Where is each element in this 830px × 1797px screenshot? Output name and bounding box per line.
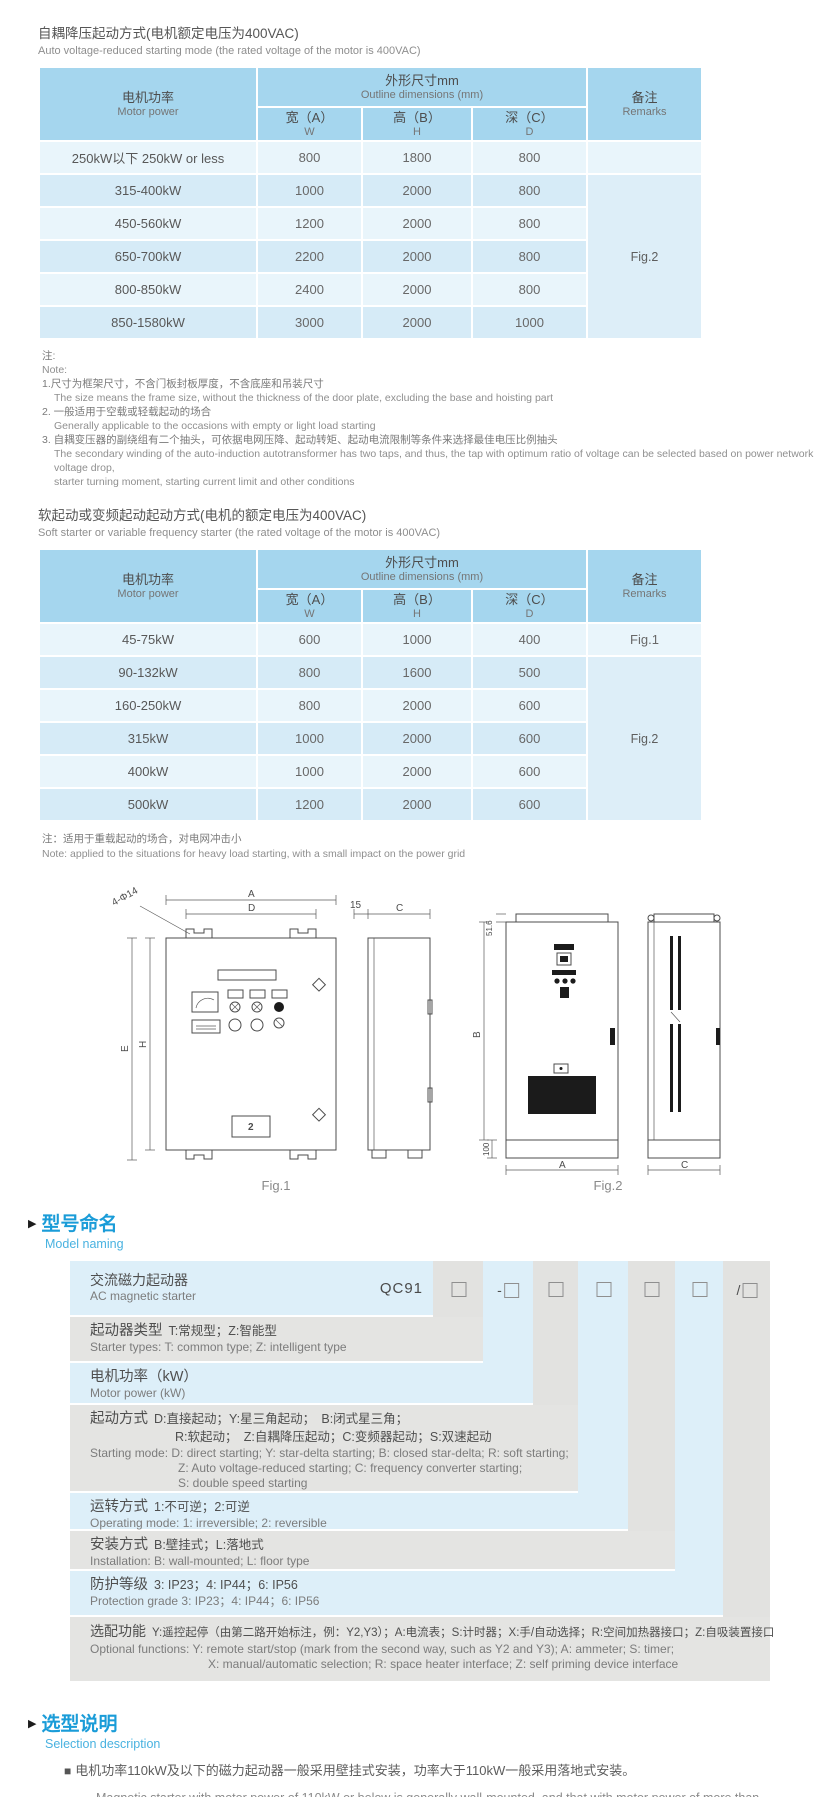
note-line: The secondary winding of the auto-induct… bbox=[42, 447, 830, 475]
fig1-drawing: A D 4-Φ14 E H bbox=[106, 880, 446, 1176]
svg-text:4-Φ14: 4-Φ14 bbox=[110, 885, 140, 908]
section1-notes: 注: Note: 1.尺寸为框架尺寸，不含门板封板厚度，不含底座和吊装尺寸 Th… bbox=[42, 349, 830, 489]
width-cell: 800 bbox=[257, 141, 362, 174]
depth-header: 深（C）D bbox=[472, 107, 587, 141]
outline-dimensions-header: 外形尺寸mm Outline dimensions (mm) bbox=[257, 549, 587, 589]
depth-cell: 600 bbox=[472, 788, 587, 821]
table-header-row: 电机功率 Motor power 外形尺寸mm Outline dimensio… bbox=[39, 67, 702, 107]
product-name-en: AC magnetic starter bbox=[90, 1289, 196, 1304]
svg-text:C: C bbox=[681, 1160, 688, 1171]
selection-paragraph-en: Magnetic starter with motor power of 110… bbox=[38, 1787, 790, 1797]
width-cell: 1200 bbox=[257, 207, 362, 240]
motor-power-en: Motor power bbox=[40, 106, 256, 119]
fig2-block: 51.6 B 100 bbox=[458, 880, 758, 1193]
code-slot bbox=[643, 1282, 660, 1297]
note-line: 1.尺寸为框架尺寸，不含门板封板厚度，不含底座和吊装尺寸 bbox=[42, 377, 830, 391]
section-arrow-icon: ▶ bbox=[28, 1218, 36, 1230]
width-cell: 2200 bbox=[257, 240, 362, 273]
power-cell: 500kW bbox=[39, 788, 257, 821]
model-row-motor-power: 电机功率（kW） Motor power (kW) bbox=[70, 1363, 770, 1405]
depth-cell: 600 bbox=[472, 722, 587, 755]
svg-text:2: 2 bbox=[248, 1122, 254, 1133]
fig2-drawing: 51.6 B 100 bbox=[458, 880, 758, 1176]
power-cell: 800-850kW bbox=[39, 273, 257, 306]
code-box bbox=[693, 1282, 708, 1297]
section1-title-zh: 自耦降压起动方式(电机额定电压为400VAC) bbox=[38, 22, 830, 42]
depth-cell: 800 bbox=[472, 273, 587, 306]
power-cell: 315kW bbox=[39, 722, 257, 755]
model-row-installation: 安装方式B:壁挂式；L:落地式 Installation: B: wall-mo… bbox=[70, 1531, 770, 1571]
height-cell: 1800 bbox=[362, 141, 472, 174]
remark-cell: Fig.1 bbox=[587, 623, 702, 656]
catalog-page: 自耦降压起动方式(电机额定电压为400VAC) Auto voltage-red… bbox=[0, 0, 830, 1797]
height-header: 高（B）H bbox=[362, 589, 472, 623]
width-cell: 1000 bbox=[257, 755, 362, 788]
selection-paragraph-zh: ■电机功率110kW及以下的磁力起动器一般采用壁挂式安装，功率大于110kW一般… bbox=[64, 1761, 830, 1781]
section2-title-en: Soft starter or variable frequency start… bbox=[38, 527, 830, 539]
selection-heading: ▶选型说明 Selection description bbox=[28, 1709, 830, 1751]
power-cell: 850-1580kW bbox=[39, 306, 257, 339]
depth-cell: 800 bbox=[472, 174, 587, 207]
table-row: 315-400kW 1000 2000 800 Fig.2 bbox=[39, 174, 702, 207]
selection-body: ■电机功率110kW及以下的磁力起动器一般采用壁挂式安装，功率大于110kW一般… bbox=[0, 1761, 830, 1797]
power-cell: 160-250kW bbox=[39, 689, 257, 722]
figures: A D 4-Φ14 E H bbox=[106, 880, 830, 1193]
svg-text:B: B bbox=[472, 1031, 483, 1038]
table-row: 45-75kW 600 1000 400 Fig.1 bbox=[39, 623, 702, 656]
remarks-header: 备注 Remarks bbox=[587, 67, 702, 141]
fig1-label: Fig.1 bbox=[106, 1178, 446, 1193]
svg-text:D: D bbox=[248, 903, 255, 914]
code-slot bbox=[547, 1282, 564, 1297]
code-box bbox=[549, 1282, 564, 1297]
code-slot: - bbox=[497, 1282, 519, 1298]
power-cell: 45-75kW bbox=[39, 623, 257, 656]
depth-cell: 500 bbox=[472, 656, 587, 689]
selection-title-zh: 选型说明 bbox=[41, 1714, 117, 1735]
table-row: 250kW以下 250kW or less 800 1800 800 bbox=[39, 141, 702, 174]
power-cell: 315-400kW bbox=[39, 174, 257, 207]
height-cell: 2000 bbox=[362, 207, 472, 240]
bullet-icon: ■ bbox=[64, 1764, 71, 1778]
svg-text:A: A bbox=[248, 889, 255, 900]
remark-cell bbox=[587, 141, 702, 174]
power-cell: 400kW bbox=[39, 755, 257, 788]
model-naming-heading: ▶型号命名 Model naming bbox=[28, 1209, 830, 1251]
code-box bbox=[597, 1282, 612, 1297]
code-box bbox=[645, 1282, 660, 1297]
height-header: 高（B）H bbox=[362, 107, 472, 141]
width-cell: 600 bbox=[257, 623, 362, 656]
remarks-header: 备注 Remarks bbox=[587, 549, 702, 623]
depth-cell: 600 bbox=[472, 755, 587, 788]
fig2-label: Fig.2 bbox=[458, 1178, 758, 1193]
auto-voltage-table: 电机功率 Motor power 外形尺寸mm Outline dimensio… bbox=[38, 66, 703, 340]
height-cell: 2000 bbox=[362, 689, 472, 722]
width-cell: 1000 bbox=[257, 722, 362, 755]
note-line: 注: bbox=[42, 349, 830, 363]
height-cell: 1600 bbox=[362, 656, 472, 689]
width-cell: 800 bbox=[257, 656, 362, 689]
motor-power-zh: 电机功率 bbox=[40, 90, 256, 106]
model-naming-title-zh: 型号命名 bbox=[41, 1214, 117, 1235]
svg-text:15: 15 bbox=[350, 900, 362, 911]
note-line: Note: applied to the situations for heav… bbox=[42, 847, 830, 862]
power-cell: 650-700kW bbox=[39, 240, 257, 273]
code-slot: / bbox=[737, 1282, 758, 1298]
table-header-row: 电机功率 Motor power 外形尺寸mm Outline dimensio… bbox=[39, 549, 702, 589]
height-cell: 2000 bbox=[362, 273, 472, 306]
model-row-optional-functions: 选配功能Y:遥控起停（由第二路开始标注，例：Y2,Y3）；A:电流表；S:计时器… bbox=[70, 1617, 770, 1683]
height-cell: 2000 bbox=[362, 174, 472, 207]
depth-cell: 600 bbox=[472, 689, 587, 722]
model-row-starter-type: 起动器类型T:常规型；Z:智能型 Starter types: T: commo… bbox=[70, 1317, 770, 1363]
remark-merged-cell: Fig.2 bbox=[587, 174, 702, 339]
power-cell: 250kW以下 250kW or less bbox=[39, 141, 257, 174]
height-cell: 2000 bbox=[362, 788, 472, 821]
code-slot bbox=[691, 1282, 708, 1297]
note-line: 2. 一般适用于空载或轻载起动的场合 bbox=[42, 405, 830, 419]
svg-text:100: 100 bbox=[482, 1142, 491, 1156]
width-cell: 1000 bbox=[257, 174, 362, 207]
height-cell: 2000 bbox=[362, 306, 472, 339]
width-cell: 3000 bbox=[257, 306, 362, 339]
depth-cell: 800 bbox=[472, 141, 587, 174]
width-header: 宽（A）W bbox=[257, 107, 362, 141]
note-line: Note: bbox=[42, 363, 830, 377]
width-header: 宽（A）W bbox=[257, 589, 362, 623]
note-line: 注：适用于重载起动的场合，对电网冲击小 bbox=[42, 832, 830, 847]
table-row: 90-132kW 800 1600 500 Fig.2 bbox=[39, 656, 702, 689]
code-box bbox=[452, 1282, 467, 1297]
width-cell: 800 bbox=[257, 689, 362, 722]
model-row-product: 交流磁力起动器 AC magnetic starter QC91 - / bbox=[70, 1261, 770, 1317]
remark-merged-cell: Fig.2 bbox=[587, 656, 702, 821]
svg-text:E: E bbox=[120, 1045, 131, 1052]
model-prefix: QC91 bbox=[380, 1280, 423, 1297]
model-row-protection-grade: 防护等级3: IP23；4: IP44；6: IP56 Protection g… bbox=[70, 1571, 770, 1617]
power-cell: 90-132kW bbox=[39, 656, 257, 689]
height-cell: 1000 bbox=[362, 623, 472, 656]
note-line: 3. 自耦变压器的副绕组有二个抽头，可依据电网压降、起动转矩、起动电流限制等条件… bbox=[42, 433, 830, 447]
height-cell: 2000 bbox=[362, 722, 472, 755]
model-naming-title-en: Model naming bbox=[45, 1237, 830, 1251]
fig1-block: A D 4-Φ14 E H bbox=[106, 880, 446, 1193]
svg-text:A: A bbox=[559, 1160, 566, 1171]
code-slot bbox=[450, 1282, 467, 1297]
svg-text:C: C bbox=[396, 903, 403, 914]
product-name-zh: 交流磁力起动器 bbox=[90, 1272, 196, 1289]
section2-note: 注：适用于重载起动的场合，对电网冲击小 Note: applied to the… bbox=[42, 832, 830, 862]
depth-cell: 800 bbox=[472, 207, 587, 240]
height-cell: 2000 bbox=[362, 240, 472, 273]
note-line: The size means the frame size, without t… bbox=[42, 391, 830, 405]
model-naming-table: 交流磁力起动器 AC magnetic starter QC91 - / 起动器… bbox=[70, 1261, 770, 1683]
depth-cell: 1000 bbox=[472, 306, 587, 339]
code-box bbox=[742, 1283, 757, 1298]
depth-header: 深（C）D bbox=[472, 589, 587, 623]
code-box bbox=[504, 1283, 519, 1298]
note-line: starter turning moment, starting current… bbox=[42, 475, 830, 489]
motor-power-header: 电机功率 Motor power bbox=[39, 549, 257, 623]
svg-text:H: H bbox=[138, 1041, 149, 1048]
section-arrow-icon: ▶ bbox=[28, 1718, 36, 1730]
width-cell: 1200 bbox=[257, 788, 362, 821]
depth-cell: 800 bbox=[472, 240, 587, 273]
note-line: Generally applicable to the occasions wi… bbox=[42, 419, 830, 433]
width-cell: 2400 bbox=[257, 273, 362, 306]
height-cell: 2000 bbox=[362, 755, 472, 788]
power-cell: 450-560kW bbox=[39, 207, 257, 240]
section2-title-zh: 软起动或变频起动起动方式(电机的额定电压为400VAC) bbox=[38, 504, 830, 524]
motor-power-header: 电机功率 Motor power bbox=[39, 67, 257, 141]
depth-cell: 400 bbox=[472, 623, 587, 656]
model-row-starting-mode: 起动方式D:直接起动；Y:星三角起动； B:闭式星三角； R:软起动； Z:自耦… bbox=[70, 1405, 770, 1493]
section1-title-en: Auto voltage-reduced starting mode (the … bbox=[38, 45, 830, 57]
soft-starter-table: 电机功率 Motor power 外形尺寸mm Outline dimensio… bbox=[38, 548, 703, 822]
outline-dimensions-header: 外形尺寸mm Outline dimensions (mm) bbox=[257, 67, 587, 107]
code-slot bbox=[595, 1282, 612, 1297]
selection-title-en: Selection description bbox=[45, 1737, 830, 1751]
model-row-operating-mode: 运转方式1:不可逆；2:可逆 Operating mode: 1: irreve… bbox=[70, 1493, 770, 1531]
